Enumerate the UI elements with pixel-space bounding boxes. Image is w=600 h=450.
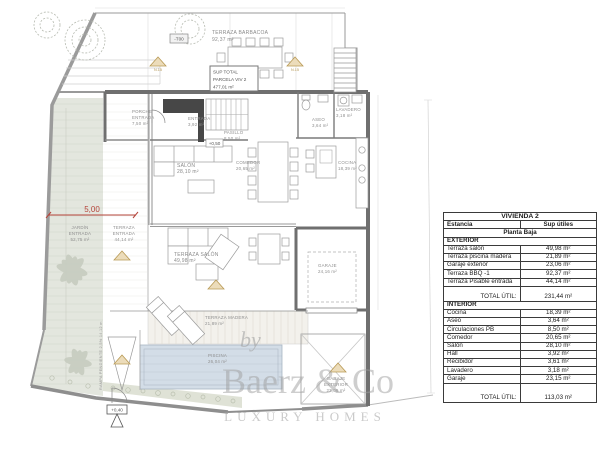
entry-garden bbox=[31, 98, 103, 396]
t00-marker: -T00 bbox=[174, 37, 184, 42]
row-value: 49,98 m² bbox=[520, 245, 597, 253]
parcel-total-line1: SUP TOTAL bbox=[213, 70, 238, 75]
kitchen-island bbox=[306, 146, 336, 178]
label-ramp-note: RAMPA PENDIENTE 2,5% 14,12 m bbox=[99, 321, 103, 390]
table-row: Hall3,92 m² bbox=[444, 350, 597, 358]
row-name: Recibidor bbox=[444, 359, 521, 367]
label-comedor: COMEDOR bbox=[236, 160, 260, 165]
col-header-room: Estancia bbox=[444, 221, 521, 229]
planter-steps bbox=[62, 60, 160, 84]
label-garaje-area: 24,16 m² bbox=[318, 269, 337, 274]
label-lavadero: LAVADERO bbox=[336, 107, 361, 112]
row-name: Lavadero bbox=[444, 367, 521, 375]
label-terraza-madera: TERRAZA MADERA bbox=[205, 315, 248, 320]
row-value: 23,15 m² bbox=[520, 375, 597, 383]
garage-bay bbox=[308, 252, 356, 302]
parcel-total-line3: 477,01 m² bbox=[213, 85, 234, 90]
table-row: Comedor20,65 m² bbox=[444, 334, 597, 342]
label-terraza-entrada-2: ENTRADA bbox=[113, 231, 135, 236]
table-row: Lavadero3,18 m² bbox=[444, 367, 597, 375]
table-row: Cocina18,39 m² bbox=[444, 309, 597, 317]
total-value: 231,44 m² bbox=[520, 286, 597, 301]
table-row: Terraza BBQ -192,37 m² bbox=[444, 270, 597, 278]
label-lavadero-area: 3,18 m² bbox=[336, 113, 353, 118]
table-row: Terraza Pisable entrada44,14 m² bbox=[444, 278, 597, 286]
north-marker-b: N.15 bbox=[291, 68, 299, 72]
row-value: 18,39 m² bbox=[520, 309, 597, 317]
row-name: Aseo bbox=[444, 318, 521, 326]
watermark-brand: Baerz & Co bbox=[222, 361, 394, 401]
row-value: 3,64 m² bbox=[520, 318, 597, 326]
exterior-total-row: TOTAL ÚTIL: 231,44 m² bbox=[444, 286, 597, 301]
row-name: Garaje exterior bbox=[444, 262, 521, 270]
col-header-area: Sup útiles bbox=[520, 221, 597, 229]
label-porche: PORCHE bbox=[132, 109, 152, 114]
laundry-fixtures bbox=[338, 95, 362, 106]
label-aseo: ASEO bbox=[312, 117, 325, 122]
row-value: 92,37 m² bbox=[520, 270, 597, 278]
label-entrada: ENTRADA bbox=[188, 116, 210, 121]
total-value: 113,03 m² bbox=[520, 383, 597, 402]
label-cocina-area: 18,39 m² bbox=[338, 166, 357, 171]
table-row: Circulaciones PB8,50 m² bbox=[444, 326, 597, 334]
watermark-by: by bbox=[240, 327, 261, 352]
row-value: 3,18 m² bbox=[520, 367, 597, 375]
label-salon-area: 28,10 m² bbox=[177, 169, 199, 175]
row-value: 8,50 m² bbox=[520, 326, 597, 334]
label-porche-2: ENTRADA bbox=[132, 115, 154, 120]
row-name: Cocina bbox=[444, 309, 521, 317]
outdoor-dining bbox=[249, 234, 289, 264]
label-cocina: COCINA bbox=[338, 160, 356, 165]
row-value: 44,14 m² bbox=[520, 278, 597, 286]
label-piscina: PISCINA bbox=[208, 353, 227, 358]
table-title: VIVIENDA 2 bbox=[444, 213, 597, 221]
total-label: TOTAL ÚTIL: bbox=[444, 383, 521, 402]
section-exterior: EXTERIOR bbox=[444, 237, 597, 245]
row-value: 28,10 m² bbox=[520, 342, 597, 350]
table-row: Terraza piscina madera21,89 m² bbox=[444, 253, 597, 261]
level-050-marker: +0,50 bbox=[209, 141, 221, 146]
level-040-marker: +0,40 bbox=[111, 408, 123, 413]
row-name: Terraza Pisable entrada bbox=[444, 278, 521, 286]
table-row: Garaje exterior23,06 m² bbox=[444, 262, 597, 270]
row-name: Comedor bbox=[444, 334, 521, 342]
label-terraza-madera-area: 21,89 m² bbox=[205, 321, 224, 326]
table-row: Garaje23,15 m² bbox=[444, 375, 597, 383]
total-label: TOTAL ÚTIL: bbox=[444, 286, 521, 301]
label-jardin: JARDÍN bbox=[71, 225, 88, 230]
row-name: Hall bbox=[444, 350, 521, 358]
label-comedor-area: 20,65 m² bbox=[236, 166, 255, 171]
kitchen-counter bbox=[356, 138, 368, 208]
label-terraza-barbacoa-area: 92,37 m² bbox=[212, 37, 234, 43]
label-aseo-area: 3,64 m² bbox=[312, 123, 329, 128]
row-name: Circulaciones PB bbox=[444, 326, 521, 334]
row-name: Salón bbox=[444, 342, 521, 350]
label-terraza-entrada-area: 44,14 m² bbox=[115, 237, 134, 242]
row-value: 3,61 m² bbox=[520, 359, 597, 367]
row-value: 23,06 m² bbox=[520, 262, 597, 270]
watermark-tagline: LUXURY HOMES bbox=[224, 409, 386, 424]
wc-fixtures bbox=[302, 95, 328, 110]
label-jardin-area: 52,75 m² bbox=[71, 237, 90, 242]
label-jardin-2: ENTRADA bbox=[69, 231, 91, 236]
table-row: Recibidor3,61 m² bbox=[444, 359, 597, 367]
label-terraza-salon-area: 49,98 m² bbox=[174, 258, 196, 264]
floor-plan-sheet: N.15 N.15 5,00 -T00 +0,50 +0,40 SUP TOTA… bbox=[0, 0, 600, 450]
dimension-label: 5,00 bbox=[84, 205, 100, 214]
interior-total-row: TOTAL ÚTIL: 113,03 m² bbox=[444, 383, 597, 402]
exterior-stairs bbox=[334, 48, 356, 92]
row-name: Terraza salón bbox=[444, 245, 521, 253]
parcel-total-line2: PARCELA VIV 2 bbox=[213, 77, 247, 82]
row-value: 20,65 m² bbox=[520, 334, 597, 342]
row-name: Garaje bbox=[444, 375, 521, 383]
label-entrada-area: 3,92 m² bbox=[188, 122, 205, 127]
dining-table bbox=[248, 142, 298, 202]
label-pasillo-area: 8,50 m² bbox=[224, 136, 241, 141]
row-value: 21,89 m² bbox=[520, 253, 597, 261]
section-interior: INTERIOR bbox=[444, 301, 597, 309]
parcel-total-box: SUP TOTAL PARCELA VIV 2 477,01 m² bbox=[210, 66, 258, 91]
label-terraza-salon: TERRAZA SALÓN bbox=[174, 251, 219, 258]
label-salon: SALÓN bbox=[177, 162, 195, 169]
table-row: Terraza salón49,98 m² bbox=[444, 245, 597, 253]
row-name: Terraza piscina madera bbox=[444, 253, 521, 261]
label-terraza-barbacoa: TERRAZA BARBACOA bbox=[212, 30, 269, 36]
label-pasillo: PASILLO bbox=[224, 130, 244, 135]
table-row: Salón28,10 m² bbox=[444, 342, 597, 350]
area-schedule-table: VIVIENDA 2 Estancia Sup útiles Planta Ba… bbox=[443, 212, 597, 403]
label-garaje: GARAJE bbox=[318, 263, 337, 268]
label-porche-area: 7,50 m² bbox=[132, 121, 149, 126]
table-row: Aseo3,64 m² bbox=[444, 318, 597, 326]
north-marker-a: N.15 bbox=[154, 68, 162, 72]
row-value: 3,92 m² bbox=[520, 350, 597, 358]
row-name: Terraza BBQ -1 bbox=[444, 270, 521, 278]
table-subtitle: Planta Baja bbox=[444, 229, 597, 237]
label-terraza-entrada: TERRAZA bbox=[113, 225, 135, 230]
